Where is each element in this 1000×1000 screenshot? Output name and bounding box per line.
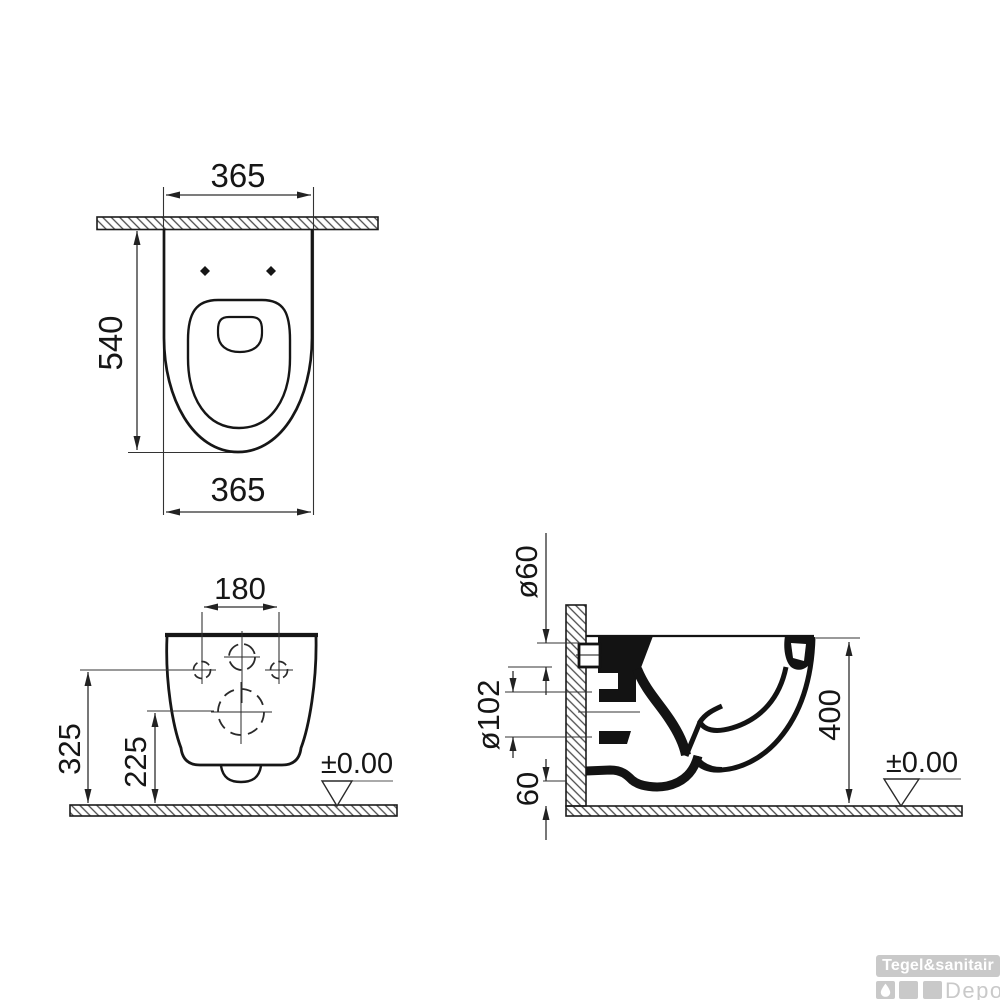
dim-side-outlet-diameter: ø102 bbox=[472, 667, 506, 763]
logo-square bbox=[923, 981, 942, 999]
side-view bbox=[505, 533, 962, 840]
dim-front-fixing-height: 325 bbox=[53, 701, 87, 797]
seat-ring-outline bbox=[188, 300, 290, 428]
flush-area-outline bbox=[218, 317, 262, 352]
toilet-dimension-drawing bbox=[0, 0, 1000, 1000]
wall-section-bar bbox=[97, 217, 378, 230]
bowl-outline-top bbox=[164, 229, 312, 452]
watermark-brand: Tegel&sanitair bbox=[876, 955, 1000, 977]
trap-bump-outline bbox=[221, 766, 261, 782]
extension-lines bbox=[80, 612, 279, 711]
dim-side-trap-clearance: 60 bbox=[511, 741, 545, 837]
watermark-name: Depot bbox=[945, 978, 1000, 1000]
seat-hinge-marks bbox=[200, 266, 276, 276]
dim-side-inlet-diameter: ø60 bbox=[510, 524, 544, 620]
dim-front-bolt-spacing: 180 bbox=[192, 572, 288, 606]
dim-top-width-top: 365 bbox=[190, 159, 286, 193]
droplet-icon bbox=[876, 981, 895, 999]
wall-section-bar bbox=[566, 605, 586, 806]
top-view bbox=[97, 187, 378, 515]
floor-datum-symbol bbox=[884, 779, 961, 806]
dimension-lines bbox=[513, 533, 849, 840]
extension-lines bbox=[128, 187, 314, 515]
front-floor-level-label: ±0.00 bbox=[309, 747, 405, 781]
floor-section-bar bbox=[566, 806, 962, 816]
watermark-logo: Tegel&sanitair Depot bbox=[876, 955, 1000, 1000]
outlet-hole bbox=[211, 682, 272, 744]
logo-square bbox=[899, 981, 918, 999]
dim-side-rim-height: 400 bbox=[813, 667, 847, 763]
technical-drawing-page: 365 540 365 180 325 225 ±0.00 ø60 ø102 6… bbox=[0, 0, 1000, 1000]
dim-front-outlet-height: 225 bbox=[119, 714, 153, 810]
side-floor-level-label: ±0.00 bbox=[874, 746, 970, 780]
dim-top-width-bottom: 365 bbox=[190, 473, 286, 507]
outlet-pipe-section bbox=[599, 731, 631, 744]
floor-datum-symbol bbox=[322, 781, 393, 806]
dim-top-depth: 540 bbox=[94, 295, 128, 391]
